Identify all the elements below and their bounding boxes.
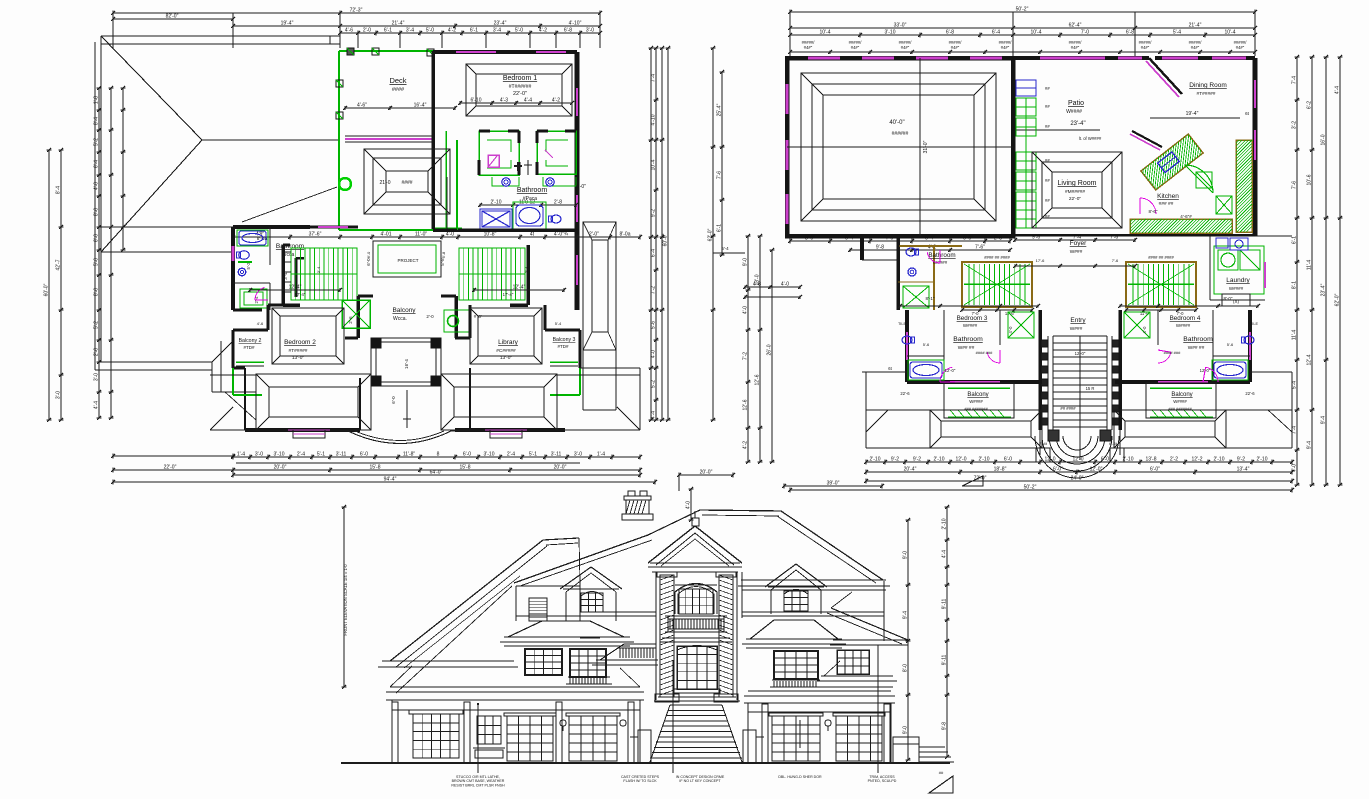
svg-text:9'-8: 9'-8 — [876, 245, 884, 251]
svg-text:22'-0": 22'-0" — [164, 465, 177, 471]
svg-text:7'-6": 7'-6" — [1110, 235, 1120, 241]
svg-text:IF NO LT KEY CONCEPT: IF NO LT KEY CONCEPT — [679, 779, 721, 783]
svg-text:25'-4": 25'-4" — [717, 103, 723, 116]
svg-text:7'-4: 7'-4 — [1292, 76, 1298, 84]
svg-text:3'-0: 3'-0 — [255, 452, 263, 458]
svg-text:2'-8: 2'-8 — [994, 236, 1002, 242]
svg-text:#4#": #4#" — [951, 45, 960, 50]
svg-text:#4#": #4#" — [804, 45, 813, 50]
svg-text:#TD#: #TD# — [243, 345, 255, 350]
svg-text:6'-0: 6'-0 — [360, 452, 368, 458]
svg-text:5'-2: 5'-2 — [246, 262, 251, 270]
svg-text:9'-11: 9'-11 — [942, 654, 948, 665]
svg-text:6'-4t: 6'-4t — [1109, 441, 1118, 446]
svg-text:5'-6: 5'-6 — [651, 321, 657, 329]
svg-text:PROJECT: PROJECT — [397, 258, 418, 263]
svg-text:Bathroom: Bathroom — [953, 336, 983, 343]
svg-text:6'-0": 6'-0" — [963, 236, 973, 242]
svg-text:16'-0: 16'-0 — [1321, 134, 1327, 145]
svg-text:2'-8: 2'-8 — [554, 200, 562, 206]
svg-text:5'-2: 5'-2 — [94, 138, 100, 146]
svg-text:4'-10: 4'-10 — [651, 114, 657, 125]
svg-text:12'-0: 12'-0 — [1073, 457, 1084, 463]
svg-text:3'-4: 3'-4 — [493, 28, 501, 34]
svg-text:3'-2: 3'-2 — [1292, 121, 1298, 129]
svg-text:TILE: TILE — [1250, 322, 1258, 326]
svg-text:4'-0: 4'-0 — [686, 501, 692, 509]
svg-text:6'-4": 6'-4" — [925, 236, 935, 242]
svg-text:9'-8: 9'-8 — [942, 722, 948, 730]
svg-text:11'-8": 11'-8" — [403, 452, 416, 458]
svg-text:60'-0": 60'-0" — [44, 283, 50, 296]
svg-text:4'-0: 4'-0 — [1142, 326, 1147, 334]
svg-text:20'-0": 20'-0" — [554, 465, 567, 471]
svg-text:3'-11: 3'-11 — [551, 452, 562, 458]
svg-text:12'-6: 12'-6 — [743, 399, 749, 410]
svg-text:5'-1: 5'-1 — [529, 452, 537, 458]
svg-text:11'-0": 11'-0" — [415, 232, 428, 238]
svg-text:6'-4: 6'-4 — [992, 30, 1000, 36]
svg-text:13'-0": 13'-0" — [292, 355, 305, 361]
svg-text:2'-4: 2'-4 — [297, 452, 305, 458]
svg-text:8'-1": 8'-1" — [926, 296, 935, 301]
svg-text:Library: Library — [498, 339, 519, 346]
svg-text:2'-10: 2'-10 — [1214, 457, 1225, 463]
svg-text:######: ###### — [892, 131, 909, 137]
svg-text:20'-0": 20'-0" — [274, 465, 287, 471]
svg-text:6'-0: 6'-0 — [463, 452, 471, 458]
svg-text:22'-0": 22'-0" — [1069, 196, 1082, 202]
svg-text:21'-4": 21'-4" — [1189, 23, 1202, 29]
svg-text:Deck: Deck — [389, 76, 406, 85]
svg-text:2'-10: 2'-10 — [1257, 457, 1268, 463]
svg-text:7'-6: 7'-6 — [1292, 181, 1298, 189]
svg-text:6'-8: 6'-8 — [1126, 30, 1134, 36]
svg-text:2'-2: 2'-2 — [1170, 457, 1178, 463]
svg-text:42'-7: 42'-7 — [56, 259, 62, 270]
svg-text:6'-0: 6'-0 — [1101, 457, 1109, 463]
svg-text:### ##: ### ## — [1159, 201, 1174, 207]
svg-text:5'-2: 5'-2 — [651, 380, 657, 388]
svg-text:#TD#: #TD# — [557, 344, 569, 349]
svg-text:5'-4: 5'-4 — [1292, 381, 1298, 389]
svg-text:3'-0: 3'-0 — [574, 452, 582, 458]
svg-text:4'-6": 4'-6" — [357, 103, 367, 109]
svg-text:4'-4: 4'-4 — [524, 98, 532, 104]
svg-text:#4#": #4#" — [1191, 45, 1200, 50]
svg-text:31'-0": 31'-0" — [923, 140, 929, 153]
svg-text:##: ## — [1045, 178, 1050, 183]
svg-text:####: #### — [401, 180, 412, 186]
svg-text:7'-4t: 7'-4t — [1039, 441, 1048, 446]
svg-text:6'-1: 6'-1 — [384, 28, 392, 34]
svg-text:##: ## — [939, 770, 944, 775]
svg-text:4'-10": 4'-10" — [569, 21, 582, 27]
svg-text:4'-01: 4'-01 — [381, 232, 392, 238]
svg-text:16'-4: 16'-4 — [404, 359, 409, 369]
svg-text:FRONT ELEVATION SCALE 1/4 = 1-: FRONT ELEVATION SCALE 1/4 = 1-0 — [343, 564, 348, 636]
svg-text:24'-0": 24'-0" — [1071, 476, 1084, 482]
svg-text:4'-0: 4'-0 — [1008, 326, 1013, 334]
svg-text:6'-8: 6'-8 — [946, 30, 954, 36]
svg-text:7'-4: 7'-4 — [1292, 426, 1298, 434]
svg-text:#4#": #4#" — [1001, 45, 1010, 50]
svg-text:2'-10: 2'-10 — [942, 518, 948, 529]
svg-text:####: #### — [392, 87, 405, 93]
svg-text:Dining Room: Dining Room — [1189, 82, 1227, 89]
svg-text:2'-0: 2'-0 — [426, 314, 434, 319]
svg-text:8'-0": 8'-0" — [1224, 296, 1233, 301]
svg-text:Bedroom 3: Bedroom 3 — [957, 315, 988, 322]
svg-text:8'-4: 8'-4 — [94, 117, 100, 125]
svg-text:6'-1: 6'-1 — [1292, 236, 1298, 244]
svg-text:Foyer: Foyer — [1070, 240, 1087, 247]
svg-text:7'-0: 7'-0 — [1081, 30, 1089, 36]
svg-text:10'-6: 10'-6 — [1307, 174, 1313, 185]
svg-text:7'-6: 7'-6 — [1112, 258, 1119, 263]
svg-text:#### ## ####: #### ## #### — [984, 255, 1010, 260]
svg-text:Living Room: Living Room — [1058, 180, 1097, 187]
svg-text:23'-4": 23'-4" — [1070, 121, 1085, 127]
svg-text:12'-0": 12'-0" — [1075, 351, 1086, 356]
svg-text:21'-4": 21'-4" — [392, 21, 405, 27]
svg-text:2'-10: 2'-10 — [1123, 457, 1134, 463]
svg-text:9'-4: 9'-4 — [1321, 416, 1327, 424]
svg-text:9'-11: 9'-11 — [942, 598, 948, 609]
svg-text:7'-4: 7'-4 — [1073, 235, 1081, 241]
svg-text:W## ##: W## ## — [958, 345, 975, 351]
svg-text:PNTED, SCULPD: PNTED, SCULPD — [868, 779, 897, 783]
svg-text:17'-4": 17'-4" — [295, 292, 306, 297]
svg-text:4'-6: 4'-6 — [345, 28, 353, 34]
svg-text:#4#": #4#" — [1141, 45, 1150, 50]
svg-text:2'-4: 2'-4 — [507, 452, 515, 458]
svg-text:12'-0: 12'-0 — [956, 457, 967, 463]
svg-text:#### ###: #### ### — [1164, 350, 1181, 355]
svg-text:##: ## — [1045, 198, 1050, 203]
svg-text:11'-4: 11'-4 — [1307, 259, 1313, 270]
svg-text:13'-8: 13'-8 — [1146, 457, 1157, 463]
svg-text:62'-0": 62'-0" — [1335, 293, 1341, 306]
svg-text:12'-0": 12'-0" — [1090, 467, 1103, 473]
svg-text:9'-2: 9'-2 — [651, 209, 657, 217]
svg-text:9'-0: 9'-0 — [903, 726, 909, 734]
svg-text:lt. of W####: lt. of W#### — [1079, 136, 1102, 141]
svg-text:4'-2: 4'-2 — [539, 28, 547, 34]
svg-text:##: ## — [1045, 124, 1050, 129]
svg-text:62'-4": 62'-4" — [1069, 23, 1082, 29]
svg-text:Entry: Entry — [1070, 317, 1086, 324]
svg-text:3'-10: 3'-10 — [274, 452, 285, 458]
svg-text:15'-8: 15'-8 — [460, 465, 471, 471]
svg-text:W###: W### — [1070, 326, 1083, 332]
svg-text:7'-2: 7'-2 — [743, 352, 749, 360]
svg-text:Bedroom 4: Bedroom 4 — [1170, 315, 1201, 322]
svg-text:9'-4: 9'-4 — [1307, 441, 1313, 449]
svg-text:Laundry: Laundry — [1226, 277, 1250, 284]
svg-text:19'-4": 19'-4" — [1186, 111, 1199, 117]
svg-text:Bathroom: Bathroom — [928, 252, 955, 259]
svg-text:9'-0: 9'-0 — [903, 551, 909, 559]
svg-text:Patio: Patio — [1068, 100, 1084, 107]
svg-text:2'-10: 2'-10 — [934, 457, 945, 463]
svg-text:W####: W#### — [1066, 109, 1082, 115]
svg-text:11'-4: 11'-4 — [1292, 329, 1298, 340]
svg-text:#4#": #4#" — [851, 45, 860, 50]
svg-text:5'-0: 5'-0 — [426, 28, 434, 34]
svg-text:Balcony 3: Balcony 3 — [553, 337, 576, 343]
svg-text:22'-0": 22'-0" — [513, 91, 527, 97]
svg-text:6'-4: 6'-4 — [651, 249, 657, 257]
svg-text:5'-4: 5'-4 — [1173, 30, 1181, 36]
svg-text:4'-0: 4'-0 — [1292, 464, 1298, 472]
svg-text:Kitchen: Kitchen — [1157, 193, 1179, 200]
svg-text:4'-4: 4'-4 — [94, 401, 100, 409]
svg-text:10'-8": 10'-8" — [484, 232, 497, 238]
svg-text:4'-8: 4'-8 — [753, 282, 761, 288]
svg-text:6'-0: 6'-0 — [1004, 457, 1012, 463]
svg-text:21'-0: 21'-0 — [380, 180, 391, 186]
svg-text:6'-0": 6'-0" — [576, 184, 586, 190]
svg-text:#M#####: #M##### — [1065, 189, 1085, 195]
svg-text:Balcony: Balcony — [967, 392, 988, 398]
svg-text:2'-6: 2'-6 — [348, 316, 353, 324]
svg-text:23'-4": 23'-4" — [1321, 283, 1327, 296]
svg-text:3'-0: 3'-0 — [94, 373, 100, 381]
svg-text:4'-3: 4'-3 — [500, 98, 508, 104]
svg-text:#T######: #T###### — [509, 84, 532, 90]
svg-text:12'-0": 12'-0" — [1200, 368, 1211, 373]
svg-text:3'-4: 3'-4 — [406, 28, 414, 34]
svg-text:4'-2: 4'-2 — [743, 441, 749, 449]
svg-text:9'-4: 9'-4 — [903, 611, 909, 619]
svg-text:26'-0: 26'-0 — [767, 344, 773, 355]
svg-text:39'-0": 39'-0" — [827, 481, 840, 487]
svg-text:10'-4: 10'-4 — [1225, 30, 1236, 36]
svg-text:9'-2: 9'-2 — [913, 457, 921, 463]
svg-text:3'-0": 3'-0" — [805, 236, 815, 242]
svg-text:6'-0": 6'-0" — [1053, 467, 1063, 473]
svg-text:3'-4: 3'-4 — [316, 266, 321, 273]
svg-text:##: ## — [1045, 104, 1050, 109]
svg-text:9'-2: 9'-2 — [1237, 457, 1245, 463]
svg-text:3'-10: 3'-10 — [885, 30, 896, 36]
svg-text:8'-4: 8'-4 — [56, 186, 62, 194]
svg-text:W## ##: W## ## — [1188, 345, 1205, 351]
svg-text:72'-3": 72'-3" — [350, 8, 363, 14]
svg-text:12'-4": 12'-4" — [513, 285, 526, 291]
svg-text:15'-8: 15'-8 — [370, 465, 381, 471]
svg-text:5'-0: 5'-0 — [94, 258, 100, 266]
svg-text:8'-6: 8'-6 — [94, 208, 100, 216]
svg-text:2'-10: 2'-10 — [870, 457, 881, 463]
svg-text:17'-6: 17'-6 — [1036, 258, 1046, 263]
svg-text:6'-1: 6'-1 — [717, 224, 723, 232]
svg-text:50'-2": 50'-2" — [1024, 485, 1037, 491]
svg-text:1'-4: 1'-4 — [597, 452, 605, 458]
svg-text:Balcony: Balcony — [1171, 392, 1192, 398]
svg-text:Balcony: Balcony — [392, 307, 416, 314]
svg-text:#### ###: #### ### — [976, 350, 993, 355]
svg-text:#### ## ####: #### ## #### — [1148, 255, 1174, 260]
svg-text:3'-4: 3'-4 — [283, 272, 288, 280]
svg-text:4'-6"#: 4'-6"# — [1180, 214, 1192, 219]
svg-text:19'-4": 19'-4" — [281, 21, 294, 27]
svg-text:4'-0: 4'-0 — [446, 232, 454, 238]
svg-text:13'-4": 13'-4" — [1237, 467, 1250, 473]
svg-text:3'-11: 3'-11 — [336, 452, 347, 458]
svg-text:5'-6: 5'-6 — [1227, 342, 1234, 347]
svg-text:12'-0: 12'-0 — [1045, 457, 1056, 463]
svg-text:W####: W#### — [969, 399, 983, 404]
svg-text:8'-0a: 8'-0a — [620, 232, 631, 238]
svg-text:Bedroom 1: Bedroom 1 — [503, 75, 537, 82]
svg-text:4'-0: 4'-0 — [781, 282, 789, 288]
svg-text:10'-4: 10'-4 — [820, 30, 831, 36]
svg-text:DBL. HUNG-D SHER DOR: DBL. HUNG-D SHER DOR — [778, 775, 822, 779]
svg-text:64'-0": 64'-0" — [430, 470, 443, 476]
svg-text:W###: W### — [1070, 249, 1083, 255]
svg-text:7'-6: 7'-6 — [717, 171, 723, 179]
svg-text:5'-2: 5'-2 — [94, 321, 100, 329]
svg-text:17'-4": 17'-4" — [503, 292, 514, 297]
svg-text:Bedroom 2: Bedroom 2 — [284, 339, 316, 346]
svg-text:62'-0": 62'-0" — [708, 228, 714, 241]
svg-text:37'-6": 37'-6" — [309, 232, 322, 238]
svg-text:4'-4: 4'-4 — [651, 411, 657, 419]
svg-text:9'-2: 9'-2 — [891, 457, 899, 463]
svg-text:22'-6: 22'-6 — [900, 391, 910, 396]
svg-text:Wcca.: Wcca. — [393, 316, 407, 322]
svg-text:12'-2: 12'-2 — [1192, 457, 1203, 463]
svg-text:W####: W#### — [1229, 286, 1244, 291]
svg-text:72'-0": 72'-0" — [974, 476, 987, 482]
svg-text:RESIST BRRL CMT PLSR FNSH: RESIST BRRL CMT PLSR FNSH — [451, 783, 505, 787]
svg-text:22'-6: 22'-6 — [1245, 391, 1255, 396]
svg-text:20'-4": 20'-4" — [904, 467, 917, 473]
svg-text:6'-0: 6'-0 — [366, 251, 371, 258]
svg-text:5'-4: 5'-4 — [555, 321, 562, 326]
svg-text:3'-0: 3'-0 — [586, 28, 594, 34]
svg-text:4'-4: 4'-4 — [1335, 86, 1341, 94]
svg-text:#T#####: #T##### — [1197, 91, 1216, 97]
svg-text:Bathroom: Bathroom — [517, 187, 548, 194]
svg-text:3'-10: 3'-10 — [484, 452, 495, 458]
svg-text:## ####: ## #### — [1060, 406, 1076, 411]
svg-text:10'-4: 10'-4 — [1031, 30, 1042, 36]
svg-text:FLASH W/ TO SLCK: FLASH W/ TO SLCK — [623, 779, 657, 783]
svg-text:60'-0": 60'-0" — [663, 233, 669, 246]
svg-text:1'-8: 1'-8 — [94, 96, 100, 104]
svg-text:8'-0: 8'-0 — [903, 664, 909, 672]
svg-text:6'-1: 6'-1 — [470, 28, 478, 34]
svg-text:6'-0: 6'-0 — [94, 234, 100, 242]
svg-text:2'-10: 2'-10 — [979, 457, 990, 463]
svg-text:5'-1: 5'-1 — [317, 452, 325, 458]
svg-text:(X): (X) — [1233, 299, 1240, 304]
svg-text:5'-6: 5'-6 — [923, 342, 930, 347]
svg-text:4'-2: 4'-2 — [552, 98, 560, 104]
svg-text:#4#": #4#" — [901, 45, 910, 50]
svg-text:12'-4": 12'-4" — [289, 285, 302, 291]
svg-text:Bathroom: Bathroom — [1183, 336, 1213, 343]
svg-text:5'-0: 5'-0 — [515, 28, 523, 34]
svg-text:12'-4: 12'-4 — [1307, 354, 1313, 365]
svg-text:6'-0: 6'-0 — [391, 396, 396, 404]
svg-text:6'-2: 6'-2 — [1307, 101, 1313, 109]
svg-text:TILE: TILE — [898, 322, 906, 326]
svg-text:#4#": #4#" — [1071, 45, 1080, 50]
svg-text:##: ## — [1045, 86, 1050, 91]
svg-text:6'-0": 6'-0" — [1150, 467, 1160, 473]
svg-text:#4#": #4#" — [1236, 45, 1245, 50]
svg-text:5'-8: 5'-8 — [441, 251, 446, 258]
svg-text:4'-6: 4'-6 — [257, 321, 264, 326]
svg-text:6'-4": 6'-4" — [845, 236, 855, 242]
svg-text:3'-0: 3'-0 — [56, 391, 62, 399]
svg-text:3'-4: 3'-4 — [524, 266, 529, 273]
svg-text:33'-0": 33'-0" — [894, 23, 907, 29]
svg-text:6'-4: 6'-4 — [721, 246, 729, 251]
svg-text:23'-4": 23'-4" — [494, 21, 507, 27]
svg-text:20'-0": 20'-0" — [700, 470, 713, 476]
svg-text:4'-2: 4'-2 — [448, 28, 456, 34]
svg-text:4'-0: 4'-0 — [651, 350, 657, 358]
svg-text:7'-6": 7'-6" — [975, 245, 985, 251]
svg-text:1'-4: 1'-4 — [237, 452, 245, 458]
svg-text:4'-4: 4'-4 — [942, 550, 948, 558]
svg-text:6'-10: 6'-10 — [471, 98, 482, 104]
svg-text:40'-0": 40'-0" — [889, 120, 904, 126]
svg-text:2'-10: 2'-10 — [491, 200, 502, 206]
svg-text:9'-0: 9'-0 — [743, 258, 749, 266]
svg-text:6'-8: 6'-8 — [564, 28, 572, 34]
svg-text:4'-0: 4'-0 — [743, 306, 749, 314]
svg-text:8'-1: 8'-1 — [1292, 281, 1298, 289]
svg-text:7'-4: 7'-4 — [651, 74, 657, 82]
svg-text:6'-4: 6'-4 — [94, 160, 100, 168]
svg-text:4'-0"¾: 4'-0"¾ — [554, 232, 569, 238]
svg-text:50'-2": 50'-2" — [1016, 7, 1029, 13]
svg-text:#T#####: #T##### — [289, 348, 308, 354]
svg-text:16'-4": 16'-4" — [414, 103, 427, 109]
svg-text:4'-0: 4'-0 — [94, 182, 100, 190]
svg-text:10'-4: 10'-4 — [651, 159, 657, 170]
svg-text:8'-6": 8'-6" — [1149, 209, 1158, 214]
svg-text:2'-0: 2'-0 — [363, 28, 371, 34]
svg-text:Balcony 2: Balcony 2 — [239, 338, 262, 344]
svg-text:4t: 4t — [530, 232, 535, 238]
svg-text:82'-0": 82'-0" — [166, 14, 179, 20]
svg-text:9'-6": 9'-6" — [1032, 235, 1042, 241]
svg-text:W####: W#### — [1173, 399, 1187, 404]
svg-text:2'-6: 2'-6 — [94, 348, 100, 356]
svg-text:8: 8 — [437, 452, 440, 458]
svg-text:12'-6: 12'-6 — [755, 374, 761, 385]
svg-text:18'-8": 18'-8" — [994, 467, 1007, 473]
svg-text:W####: W#### — [1176, 323, 1191, 328]
svg-text:15 R: 15 R — [1086, 386, 1095, 391]
svg-text:#C#####: #C##### — [496, 348, 516, 354]
svg-text:W####: W#### — [963, 323, 978, 328]
svg-text:8'-6: 8'-6 — [94, 288, 100, 296]
svg-text:94'-4": 94'-4" — [384, 477, 397, 483]
svg-text:13'-0": 13'-0" — [500, 355, 513, 361]
svg-text:12'-0": 12'-0" — [945, 368, 956, 373]
svg-text:7'-2: 7'-2 — [651, 286, 657, 294]
